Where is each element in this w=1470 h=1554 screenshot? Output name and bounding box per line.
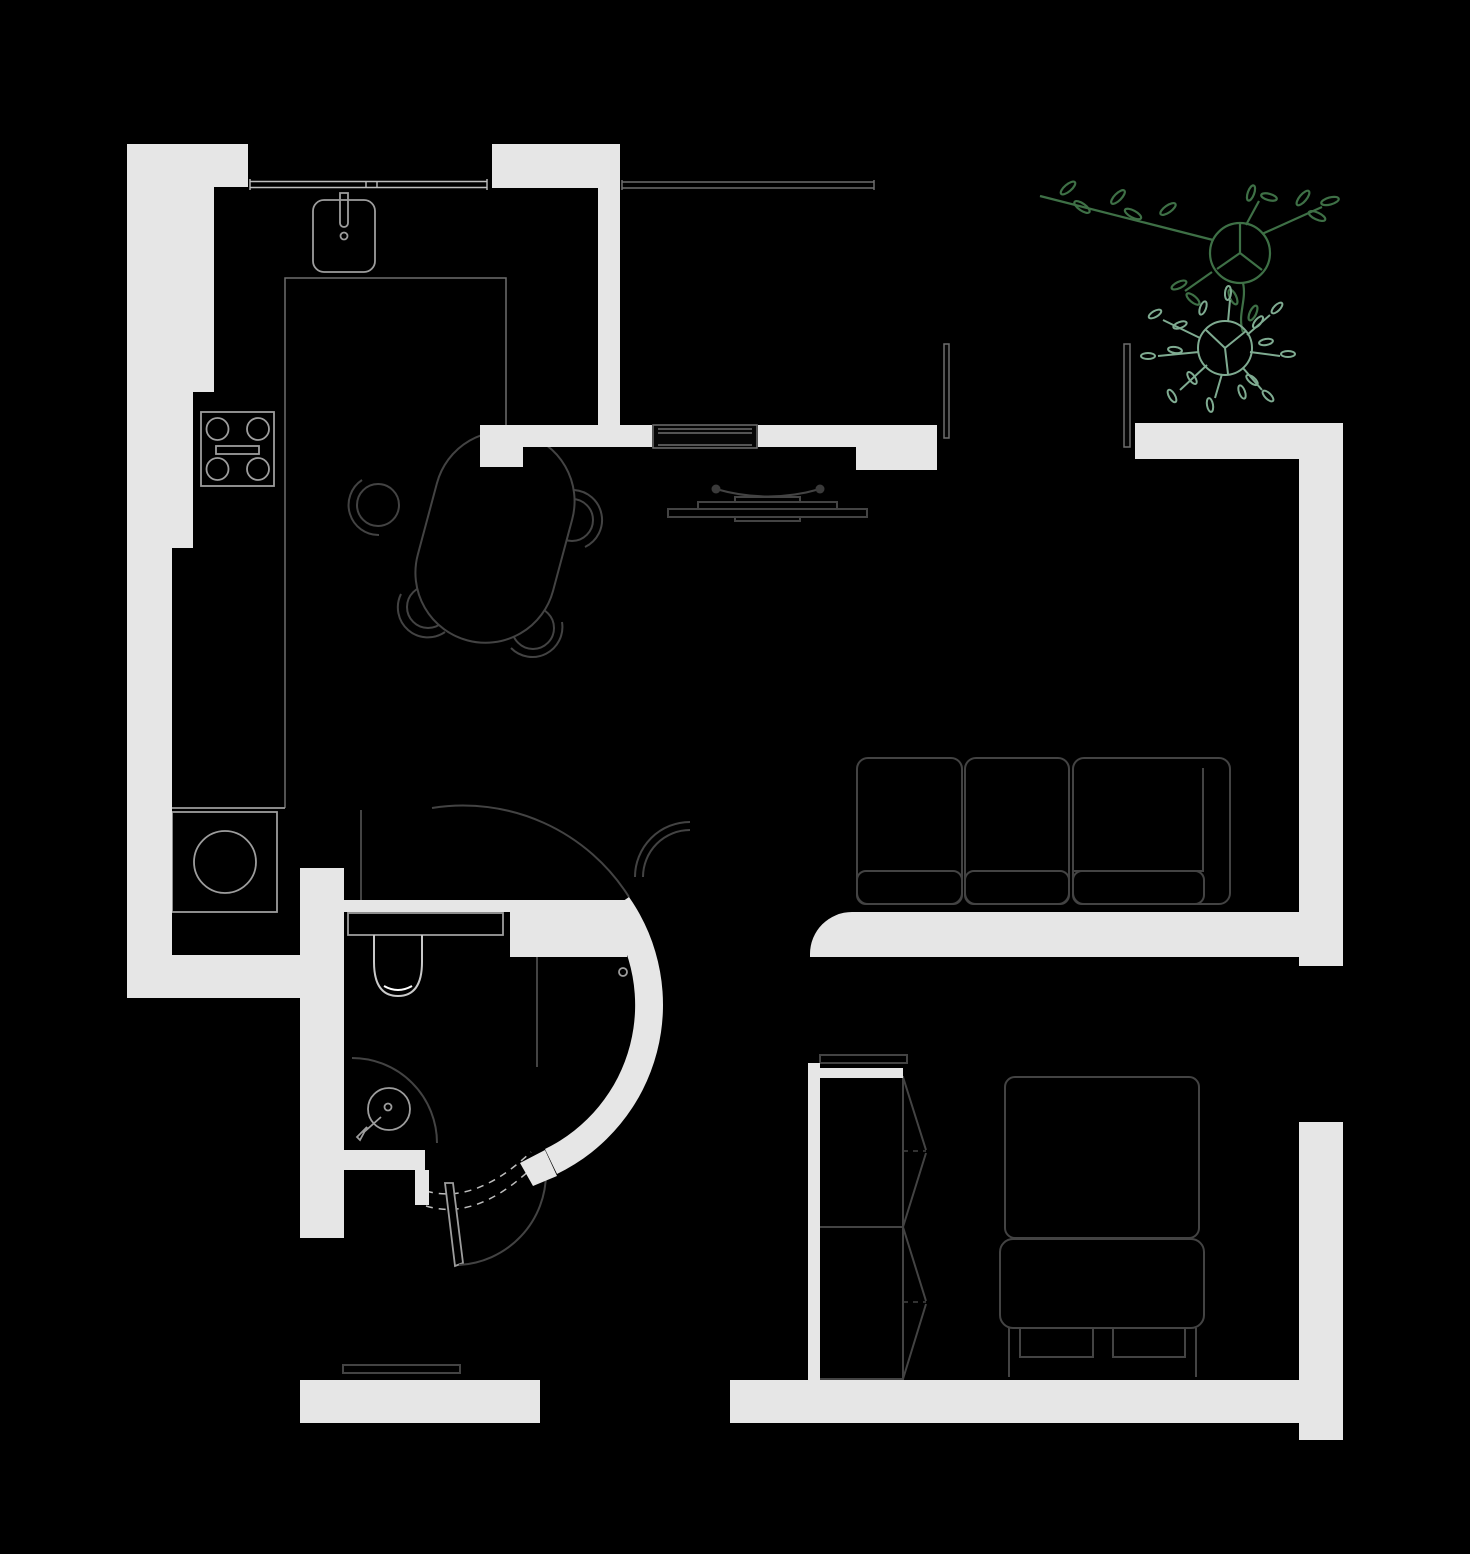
wall-bedroom-bottom (730, 1380, 1343, 1423)
washing-machine-icon (172, 808, 285, 912)
sofa-cushion (1073, 871, 1204, 904)
wall-bath-bottom (344, 1150, 425, 1170)
wall-entry-right (758, 425, 937, 447)
wall-entry-left (480, 425, 652, 447)
window-band-2 (622, 180, 874, 190)
dining-chair-icon (349, 480, 399, 535)
wall-right-upper (1299, 459, 1343, 966)
kitchen-sink-icon (313, 193, 375, 272)
wall-hall-vertical (300, 868, 344, 1238)
partition-cap-line (820, 1055, 907, 1063)
wall-left-lower (127, 548, 172, 955)
plant-icon-light (1141, 286, 1295, 413)
burner-icon (247, 458, 269, 480)
wall-bottom-left-band (127, 955, 302, 998)
sofa-cushion (965, 871, 1069, 904)
wall-toilet-band (344, 900, 510, 912)
wall-bedroom-partition-h (819, 1068, 903, 1078)
wall-kitchen-vertical (598, 188, 620, 425)
washbasin-icon (357, 1088, 410, 1140)
wall-bath-bottom-stub (415, 1170, 429, 1205)
door-stop (849, 447, 856, 453)
walls (127, 144, 1343, 1440)
floor-plan (0, 0, 1470, 1554)
wall-left-mid (127, 392, 193, 548)
wall-kitchen-top-right (492, 144, 620, 188)
wardrobe-icon (819, 1077, 926, 1379)
wall-fin (1124, 344, 1130, 447)
bedroom (819, 1055, 1204, 1379)
wall-entry-left-step (480, 447, 523, 467)
burner-icon (247, 418, 269, 440)
wall-top-right-band (1135, 423, 1343, 459)
sliding-door-track (426, 1152, 531, 1194)
bed-drawer (1020, 1328, 1093, 1357)
wall-entry-right-step (856, 447, 937, 470)
door-pivot-arc-icon (635, 822, 690, 877)
wall-fin (944, 344, 949, 438)
wall-bedroom-partition-v (808, 1063, 820, 1380)
stove-icon (201, 412, 274, 486)
window-band (250, 179, 487, 190)
faucet-icon (340, 193, 348, 227)
wall-top-left (127, 144, 248, 187)
floor-plan-canvas (0, 0, 1470, 1554)
plant-icon-dark (1040, 180, 1340, 332)
bed-drawer (1113, 1328, 1185, 1357)
wall-left-upper (127, 187, 214, 392)
door-swing-arc (459, 1173, 546, 1265)
coat-rack-icon (668, 485, 867, 522)
wall-living-band (810, 912, 1299, 957)
bathroom (348, 810, 627, 1266)
dining-area (349, 416, 602, 659)
wall-shower-block (510, 900, 627, 957)
entry-door-icon (653, 425, 757, 448)
burner-icon (207, 418, 229, 440)
burner-icon (207, 458, 229, 480)
floor-boundary-lines (432, 806, 690, 897)
threshold (343, 1365, 460, 1373)
toilet-icon (348, 913, 503, 996)
wall-bottom-left (300, 1380, 540, 1423)
double-bed-icon (1000, 1077, 1204, 1377)
bathroom-door-icon (445, 1183, 463, 1266)
door-handle-dot (619, 968, 627, 976)
curved-wall-outline (432, 806, 629, 897)
sofa-cushion (857, 871, 962, 904)
sofa-icon (857, 758, 1230, 904)
